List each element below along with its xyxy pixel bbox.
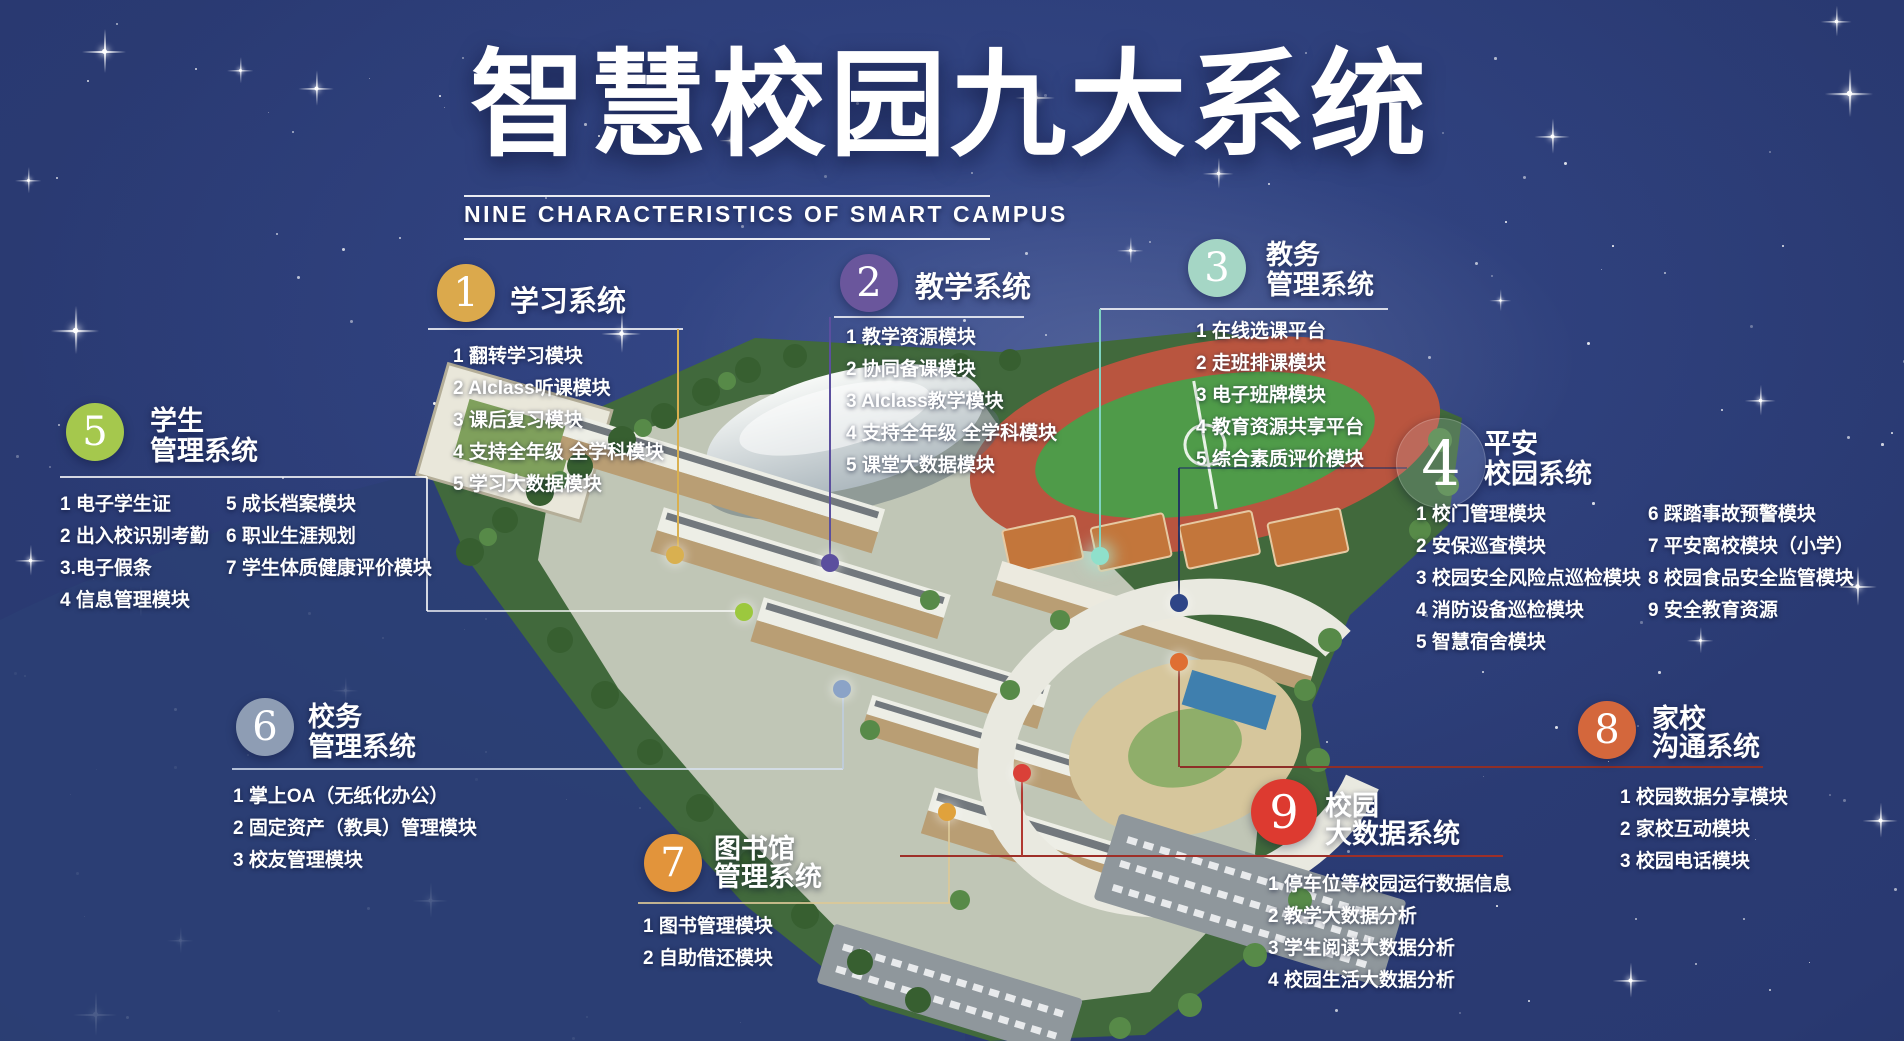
module-item: 2 固定资产（教具）管理模块: [233, 813, 477, 845]
system-8-title: 家校 沟通系统: [1652, 705, 1760, 761]
system-title-line: 管理系统: [1266, 270, 1374, 300]
module-item: 5 智慧宿舍模块: [1416, 627, 1641, 659]
system-title-line: 平安: [1484, 429, 1592, 459]
module-item: 1 翻转学习模块: [453, 341, 664, 373]
module-item: 2 安保巡查模块: [1416, 531, 1641, 563]
module-item: 6 踩踏事故预警模块: [1648, 499, 1854, 531]
system-5-modules-col2: 5 成长档案模块 6 职业生涯规划 7 学生体质健康评价模块: [226, 489, 432, 585]
system-title-line: 校园系统: [1484, 459, 1592, 489]
system-8-badge: 8: [1578, 701, 1636, 759]
module-item: 2 教学大数据分析: [1268, 901, 1512, 933]
module-item: 5 学习大数据模块: [453, 469, 664, 501]
system-7-badge: 7: [644, 834, 702, 892]
module-item: 3 校园电话模块: [1620, 846, 1788, 878]
system-2-badge: 2: [840, 254, 898, 312]
system-1-badge: 1: [437, 264, 495, 322]
system-title-line: 大数据系统: [1325, 820, 1460, 848]
system-title-line: 学习系统: [510, 287, 626, 317]
system-title-line: 管理系统: [150, 436, 258, 466]
system-1-modules: 1 翻转学习模块 2 AIclass听课模块 3 课后复习模块 4 支持全年级 …: [453, 341, 664, 501]
module-item: 6 职业生涯规划: [226, 521, 432, 553]
system-5-badge: 5: [66, 403, 124, 461]
system-4-title: 平安 校园系统: [1484, 429, 1592, 489]
system-9-title: 校园 大数据系统: [1325, 792, 1460, 848]
system-2-title: 教学系统: [915, 273, 1031, 303]
module-item: 1 校园数据分享模块: [1620, 782, 1788, 814]
system-3-modules: 1 在线选课平台 2 走班排课模块 3 电子班牌模块 4 教育资源共享平台 5 …: [1196, 316, 1364, 476]
module-item: 3 课后复习模块: [453, 405, 664, 437]
system-title-line: 家校: [1652, 705, 1760, 733]
module-item: 4 支持全年级 全学科模块: [453, 437, 664, 469]
module-item: 5 成长档案模块: [226, 489, 432, 521]
module-item: 3 学生阅读大数据分析: [1268, 933, 1512, 965]
system-4-badge: 4: [1396, 418, 1486, 508]
system-3-title: 教务 管理系统: [1266, 240, 1374, 300]
module-item: 7 学生体质健康评价模块: [226, 553, 432, 585]
system-9-badge: 9: [1251, 779, 1317, 845]
system-8-modules: 1 校园数据分享模块 2 家校互动模块 3 校园电话模块: [1620, 782, 1788, 878]
system-title-line: 校园: [1325, 792, 1460, 820]
module-item: 2 家校互动模块: [1620, 814, 1788, 846]
system-title-line: 沟通系统: [1652, 733, 1760, 761]
system-1-title: 学习系统: [510, 287, 626, 317]
page-subtitle: NINE CHARACTERISTICS OF SMART CAMPUS: [464, 201, 990, 228]
module-item: 2 出入校识别考勤: [60, 521, 209, 553]
smart-campus-poster: 智慧校园九大系统 NINE CHARACTERISTICS OF SMART C…: [0, 0, 1904, 1041]
system-title-line: 教学系统: [915, 273, 1031, 303]
system-9-modules: 1 停车位等校园运行数据信息 2 教学大数据分析 3 学生阅读大数据分析 4 校…: [1268, 869, 1512, 997]
module-item: 7 平安离校模块（小学）: [1648, 531, 1854, 563]
module-item: 5 综合素质评价模块: [1196, 444, 1364, 476]
system-6-modules: 1 掌上OA（无纸化办公） 2 固定资产（教具）管理模块 3 校友管理模块: [233, 781, 477, 877]
module-item: 2 AIclass听课模块: [453, 373, 664, 405]
module-item: 1 停车位等校园运行数据信息: [1268, 869, 1512, 901]
module-item: 3 校园安全风险点巡检模块: [1416, 563, 1641, 595]
system-6-badge: 6: [236, 698, 294, 756]
module-item: 9 安全教育资源: [1648, 595, 1854, 627]
system-title-line: 管理系统: [714, 863, 822, 891]
page-title: 智慧校园九大系统: [420, 42, 1480, 170]
system-7-title: 图书馆 管理系统: [714, 835, 822, 891]
module-item: 4 支持全年级 全学科模块: [846, 418, 1057, 450]
system-4-modules-col2: 6 踩踏事故预警模块 7 平安离校模块（小学） 8 校园食品安全监管模块 9 安…: [1648, 499, 1854, 627]
module-item: 4 消防设备巡检模块: [1416, 595, 1641, 627]
module-item: 1 电子学生证: [60, 489, 209, 521]
module-item: 2 自助借还模块: [643, 943, 773, 975]
system-6-title: 校务 管理系统: [308, 702, 416, 762]
system-4-modules-col1: 1 校门管理模块 2 安保巡查模块 3 校园安全风险点巡检模块 4 消防设备巡检…: [1416, 499, 1641, 659]
system-7-modules: 1 图书管理模块 2 自助借还模块: [643, 911, 773, 975]
module-item: 1 掌上OA（无纸化办公）: [233, 781, 477, 813]
system-title-line: 图书馆: [714, 835, 822, 863]
module-item: 4 信息管理模块: [60, 585, 209, 617]
module-item: 1 教学资源模块: [846, 322, 1057, 354]
module-item: 1 在线选课平台: [1196, 316, 1364, 348]
module-item: 3 电子班牌模块: [1196, 380, 1364, 412]
module-item: 3.电子假条: [60, 553, 209, 585]
system-5-title: 学生 管理系统: [150, 406, 258, 466]
system-title-line: 学生: [150, 406, 258, 436]
module-item: 4 教育资源共享平台: [1196, 412, 1364, 444]
module-item: 3 校友管理模块: [233, 845, 477, 877]
system-3-badge: 3: [1188, 239, 1246, 297]
system-5-modules-col1: 1 电子学生证 2 出入校识别考勤 3.电子假条 4 信息管理模块: [60, 489, 209, 617]
module-item: 8 校园食品安全监管模块: [1648, 563, 1854, 595]
module-item: 2 协同备课模块: [846, 354, 1057, 386]
module-item: 4 校园生活大数据分析: [1268, 965, 1512, 997]
system-title-line: 校务: [308, 702, 416, 732]
module-item: 5 课堂大数据模块: [846, 450, 1057, 482]
system-title-line: 管理系统: [308, 732, 416, 762]
module-item: 1 校门管理模块: [1416, 499, 1641, 531]
module-item: 1 图书管理模块: [643, 911, 773, 943]
system-2-modules: 1 教学资源模块 2 协同备课模块 3 AIclass教学模块 4 支持全年级 …: [846, 322, 1057, 482]
module-item: 2 走班排课模块: [1196, 348, 1364, 380]
module-item: 3 AIclass教学模块: [846, 386, 1057, 418]
system-title-line: 教务: [1266, 240, 1374, 270]
